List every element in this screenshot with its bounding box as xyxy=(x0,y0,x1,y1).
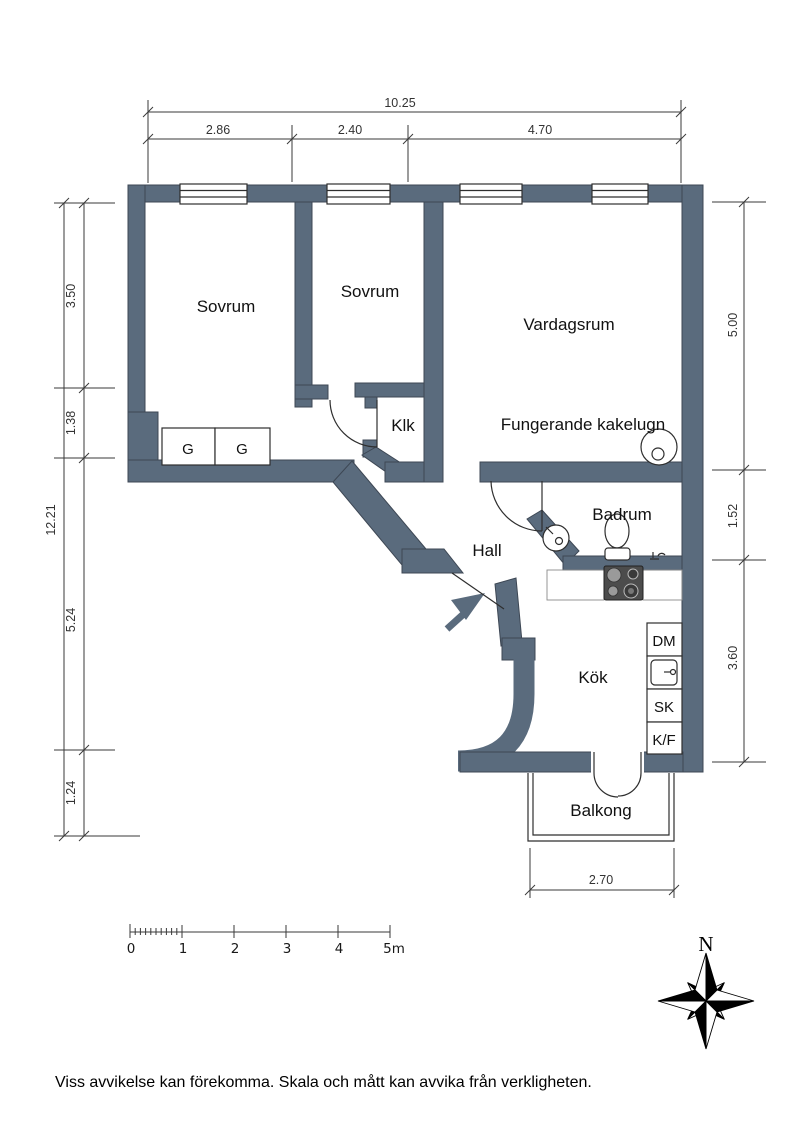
window-icon xyxy=(460,184,522,204)
balcony-door-arc-left xyxy=(594,773,618,797)
wall-entry xyxy=(402,549,463,573)
entrance-arrow-icon xyxy=(451,593,485,620)
window-icon xyxy=(592,184,648,204)
dimension-right: 5.00 1.52 3.60 xyxy=(712,197,766,767)
room-label-sovrum2: Sovrum xyxy=(341,282,400,301)
balcony-door-gap xyxy=(591,750,644,774)
floor-plan-canvas: G G DM SK K/F xyxy=(0,0,800,1132)
entrance-arrow-shaft xyxy=(447,610,468,629)
balcony-door-arc-right xyxy=(618,773,641,796)
dim-balcony: 2.70 xyxy=(589,873,613,887)
wall-left-lower xyxy=(128,412,158,464)
room-label-vardagsrum: Vardagsrum xyxy=(523,315,614,334)
dim-left-seg-2: 5.24 xyxy=(64,608,78,632)
compass-rose-icon: N xyxy=(658,932,754,1049)
dim-left-seg-1: 1.38 xyxy=(64,411,78,435)
wardrobe-right-label: G xyxy=(236,441,248,458)
scale-label-4: 4 xyxy=(335,941,344,957)
wall-partition-sovrum xyxy=(295,202,312,407)
scale-label-2: 2 xyxy=(231,941,240,957)
stove-icon xyxy=(604,566,643,600)
wall-left-upper xyxy=(128,185,145,415)
room-label-sovrum1: Sovrum xyxy=(197,297,256,316)
floor-plan-page: G G DM SK K/F xyxy=(0,0,800,1132)
walls xyxy=(128,185,703,772)
wall-kitchen-upper-left xyxy=(495,578,522,646)
scale-label-3: 3 xyxy=(283,941,292,957)
room-label-badrum: Badrum xyxy=(592,505,652,524)
wall-right xyxy=(682,185,703,772)
dim-right-seg-1: 1.52 xyxy=(726,504,740,528)
wall-kitchen-curve xyxy=(458,648,524,761)
scale-label-0: 0 xyxy=(127,941,136,957)
toilet-cistern xyxy=(605,548,630,560)
window-icon xyxy=(327,184,390,204)
dim-top-seg-0: 2.86 xyxy=(206,123,230,137)
dim-right-seg-0: 5.00 xyxy=(726,313,740,337)
kitchen-sink-icon xyxy=(647,656,682,689)
dimension-annotations: 10.25 2.86 2.40 4.70 12.21 3.50 1.38 5.2… xyxy=(44,96,766,898)
counter-right xyxy=(643,570,682,600)
wall-partition-vardagsrum xyxy=(424,202,443,482)
fridge-freezer-label: K/F xyxy=(652,732,675,749)
window-icon xyxy=(180,184,247,204)
dim-top-total: 10.25 xyxy=(384,96,415,110)
dim-top-seg-2: 4.70 xyxy=(528,123,552,137)
wall-bottom xyxy=(460,752,683,772)
disclaimer: Viss avvikelse kan förekomma. Skala och … xyxy=(55,1073,592,1091)
wall-klk-left-stub xyxy=(365,397,377,408)
dimension-balcony: 2.70 xyxy=(525,848,679,898)
dishwasher-label: DM xyxy=(652,633,675,650)
room-label-hall: Hall xyxy=(472,541,501,560)
fixtures: G G DM SK K/F xyxy=(162,428,682,841)
kakelugn-flue-icon xyxy=(652,448,664,460)
wardrobe-left-label: G xyxy=(182,441,194,458)
dim-left-seg-0: 3.50 xyxy=(64,284,78,308)
dim-top-seg-1: 2.40 xyxy=(338,123,362,137)
cabinet-label: SK xyxy=(654,699,674,716)
room-label-klk: Klk xyxy=(391,416,415,435)
room-label-balkong: Balkong xyxy=(570,801,631,820)
scale-label-1: 1 xyxy=(179,941,188,957)
dim-left-total: 12.21 xyxy=(44,504,58,535)
kakelugn-note: Fungerande kakelugn xyxy=(501,415,665,434)
wall-stub xyxy=(295,385,328,399)
dimension-left: 12.21 3.50 1.38 5.24 1.24 xyxy=(44,198,140,841)
dim-right-seg-2: 3.60 xyxy=(726,646,740,670)
scale-bar: 0 1 2 3 4 5m xyxy=(127,924,405,957)
wall-vardagsrum-bottom xyxy=(480,462,683,482)
room-label-kok: Kök xyxy=(578,668,608,687)
compass-north-label: N xyxy=(698,932,713,956)
dimension-top: 10.25 2.86 2.40 4.70 xyxy=(143,96,686,183)
counter-left xyxy=(547,570,604,600)
bathroom-sink-icon xyxy=(543,525,569,551)
dim-left-seg-3: 1.24 xyxy=(64,781,78,805)
scale-label-5m: 5m xyxy=(383,941,405,957)
